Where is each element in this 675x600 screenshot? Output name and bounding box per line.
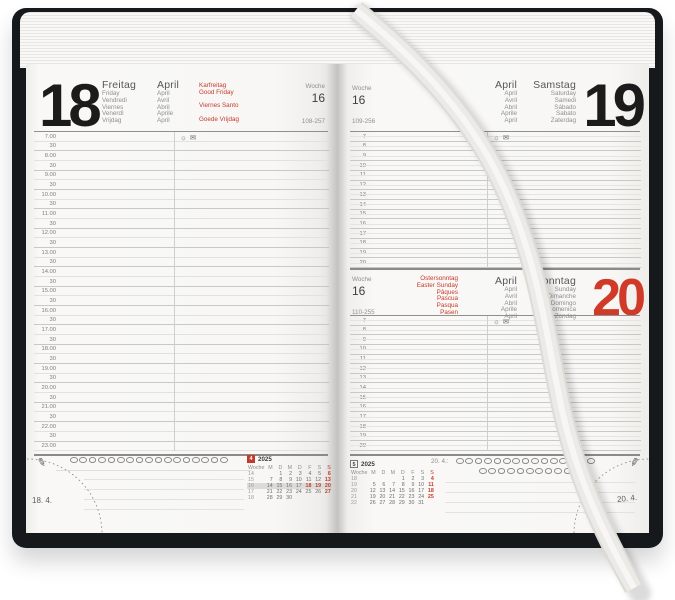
hour-row: 16 [350, 403, 641, 413]
sunday-hour-grid: 7891011121314151617181920 [350, 316, 641, 451]
saturday-day-name-column: SamstagSaturdaySamediSábadoSabatoZaterda… [533, 79, 576, 125]
oval-marker-icon [136, 457, 144, 463]
time-slot-row: 14.00 [34, 267, 329, 277]
friday-holiday-column: KarfreitagGood Friday Viernes Santo Goed… [199, 83, 239, 124]
oval-marker-icon [559, 458, 567, 464]
time-slot-row: 30 [34, 432, 329, 442]
hour-row: 18 [350, 239, 641, 249]
hour-row: 8 [350, 142, 641, 152]
hour-row: 8 [350, 326, 641, 336]
envelope-icon: ✉ [503, 133, 512, 142]
oval-marker-icon [192, 457, 200, 463]
time-slot-row: 30 [34, 238, 329, 248]
time-slot-row: 12.00 [34, 229, 329, 239]
oval-marker-icon [173, 457, 181, 463]
saturday-hour-grid: 7891011121314151617181920 [350, 132, 641, 268]
may-calendar-grid: WocheMDMDFSS1812341956789101120121314151… [350, 470, 438, 506]
hour-row: 16 [350, 219, 641, 229]
time-slot-row: 30 [34, 180, 329, 190]
oval-marker-icon [108, 457, 116, 463]
friday-symbol-markers [70, 457, 230, 463]
calendar-cell: 30 [406, 500, 416, 506]
oval-marker-icon [517, 468, 525, 474]
sunday-symbol-markers-row2 [479, 468, 582, 474]
right-page: Woche 16 109-256 AprilAprilAvrilAbrilApr… [337, 64, 649, 533]
oval-marker-icon [79, 457, 87, 463]
calendar-cell: 22 [350, 500, 367, 506]
friday-day-number: 18 [39, 76, 98, 136]
oval-marker-icon [465, 458, 473, 464]
time-slot-row: 9.00 [34, 171, 329, 181]
hour-row: 15 [350, 393, 641, 403]
oval-marker-icon [526, 468, 534, 474]
friday-time-grid: 7.00308.00309.003010.003011.003012.00301… [34, 132, 329, 451]
sunday-week-label: Woche [352, 276, 371, 283]
time-slot-row: 22.00 [34, 422, 329, 432]
hour-row: 10 [350, 345, 641, 355]
oval-marker-icon [503, 458, 511, 464]
time-slot-row: 30 [34, 335, 329, 345]
time-slot-row: 16.00 [34, 306, 329, 316]
hour-row: 9 [350, 151, 641, 161]
note-line [84, 499, 244, 500]
time-slot-row: 11.00 [34, 209, 329, 219]
sunday-footer-rule [350, 454, 640, 456]
saturday-day-number: 19 [583, 76, 642, 136]
hour-row: 14 [350, 383, 641, 393]
note-line [445, 512, 635, 513]
calendar-cell: 30 [283, 495, 293, 501]
oval-marker-icon [164, 457, 172, 463]
saturday-page-code: 109-256 [352, 118, 375, 125]
calendar-cell: 28 [386, 500, 396, 506]
oval-marker-icon [554, 468, 562, 474]
calendar-cell: 28 [264, 495, 274, 501]
april-calendar-title: 4 2025 [247, 455, 335, 463]
diary-photo: 18 FreitagFridayVendrediViernesVenerdìVr… [0, 0, 675, 600]
oval-marker-icon [569, 458, 577, 464]
hour-row: 10 [350, 161, 641, 171]
oval-marker-icon [155, 457, 163, 463]
friday-page-code: 108-257 [302, 118, 325, 125]
saturday-week-label: Woche [352, 85, 371, 92]
hour-row: 13 [350, 190, 641, 200]
oval-marker-icon [522, 458, 530, 464]
hour-row: 20 [350, 441, 641, 451]
time-slot-row: 30 [34, 219, 329, 229]
time-slot-row: 30 [34, 316, 329, 326]
oval-marker-icon [488, 468, 496, 474]
time-slot-row: 30 [34, 374, 329, 384]
hour-row: 19 [350, 249, 641, 259]
note-line [445, 482, 635, 483]
oval-marker-icon [145, 457, 153, 463]
calendar-cell: 26 [367, 500, 377, 506]
sun-icon: ☼ [180, 133, 190, 142]
time-slot-row: 13.00 [34, 248, 329, 258]
time-slot-row: 30 [34, 258, 329, 268]
oval-marker-icon [201, 457, 209, 463]
oval-marker-icon [507, 468, 515, 474]
sunday-day-icons: ☼✉ [493, 317, 512, 326]
calendar-cell [425, 500, 435, 506]
hour-row: 9 [350, 335, 641, 345]
oval-marker-icon [550, 458, 558, 464]
saturday-month-column: AprilAprilAvrilAbrilAprileApril [495, 79, 517, 125]
hour-row: 14 [350, 200, 641, 210]
note-line [445, 492, 635, 493]
calendar-cell [293, 495, 303, 501]
hour-row: 11 [350, 355, 641, 365]
friday-week-number: 16 [312, 91, 325, 105]
oval-marker-icon [183, 457, 191, 463]
calendar-cell: 31 [415, 500, 425, 506]
mini-calendar-may: 5 2025 WocheMDMDFSS181234195678910112012… [350, 460, 438, 506]
oval-marker-icon [220, 457, 228, 463]
mini-calendar-april: 4 2025 WocheMDMDFSS141234561578910111213… [247, 455, 335, 501]
oval-marker-icon [117, 457, 125, 463]
time-slot-row: 21.00 [34, 403, 329, 413]
saturday-day-icons: ☼✉ [493, 133, 512, 142]
friday-week-label: Woche [306, 83, 325, 90]
time-slot-row: 20.00 [34, 383, 329, 393]
pencil-icon: ✎ [628, 455, 640, 470]
gutter-shadow [326, 64, 348, 533]
time-slot-row: 30 [34, 142, 329, 152]
time-slot-row: 30 [34, 200, 329, 210]
oval-marker-icon [456, 458, 464, 464]
time-slot-row: 30 [34, 161, 329, 171]
april-month-badge: 4 [247, 455, 255, 463]
saturday-week-number: 16 [352, 93, 365, 107]
hour-row: 15 [350, 210, 641, 220]
hour-row: 20 [350, 258, 641, 268]
oval-marker-icon [564, 468, 572, 474]
oval-marker-icon [484, 458, 492, 464]
oval-marker-icon [498, 468, 506, 474]
envelope-icon: ✉ [503, 317, 512, 326]
friday-day-name-column: FreitagFridayVendrediViernesVenerdìVrijd… [102, 79, 136, 125]
oval-marker-icon [512, 458, 520, 464]
hour-row: 17 [350, 229, 641, 239]
note-line [84, 479, 244, 480]
time-slot-row: 19.00 [34, 364, 329, 374]
oval-marker-icon [494, 458, 502, 464]
sun-icon: ☼ [493, 133, 503, 142]
oval-marker-icon [479, 468, 487, 474]
pencil-icon: ✎ [35, 455, 47, 470]
time-slot-row: 30 [34, 393, 329, 403]
oval-marker-icon [98, 457, 106, 463]
note-line [84, 509, 244, 510]
sunday-note-lines [445, 482, 635, 522]
sunday-week-number: 16 [352, 284, 365, 298]
saturday-column-divider [487, 132, 488, 268]
friday-marker-underline [56, 470, 252, 471]
time-slot-row: 17.00 [34, 325, 329, 335]
hour-row: 19 [350, 432, 641, 442]
hour-row: 13 [350, 374, 641, 384]
note-line [445, 502, 635, 503]
page-stack-edge [20, 12, 655, 68]
friday-column-divider [174, 132, 175, 451]
oval-marker-icon [126, 457, 134, 463]
may-calendar-title: 5 2025 [350, 460, 438, 468]
friday-month-column: AprilAprilAvrilAbrilAprileApril [157, 79, 179, 125]
april-calendar-year: 2025 [258, 456, 272, 463]
time-slot-row: 10.00 [34, 190, 329, 200]
oval-marker-icon [211, 457, 219, 463]
oval-marker-icon [89, 457, 97, 463]
note-line [84, 489, 244, 490]
hour-row: 12 [350, 181, 641, 191]
april-calendar-grid: WocheMDMDFSS1412345615789101112131614151… [247, 465, 335, 501]
time-slot-row: 30 [34, 296, 329, 306]
hour-row: 11 [350, 171, 641, 181]
may-month-badge: 5 [350, 460, 358, 468]
may-calendar-year: 2025 [361, 461, 375, 468]
envelope-icon: ✉ [190, 133, 199, 142]
calendar-cell: 29 [274, 495, 284, 501]
calendar-cell: 29 [396, 500, 406, 506]
time-slot-row: 30 [34, 277, 329, 287]
time-slot-row: 30 [34, 354, 329, 364]
friday-corner-date: 18. 4. [32, 496, 52, 505]
oval-marker-icon [541, 458, 549, 464]
oval-marker-icon [545, 468, 553, 474]
time-slot-row: 30 [34, 412, 329, 422]
friday-note-lines [84, 479, 244, 519]
oval-marker-icon [578, 458, 586, 464]
oval-marker-icon [535, 468, 543, 474]
oval-marker-icon [475, 458, 483, 464]
sunday-holiday-column: OstersonntagEaster SundayPâquesPascuaPas… [417, 276, 458, 317]
time-slot-row: 18.00 [34, 345, 329, 355]
sunday-symbol-markers-row1 [456, 458, 597, 464]
calendar-cell: 18 [247, 495, 264, 501]
hour-row: 12 [350, 364, 641, 374]
oval-marker-icon [587, 458, 595, 464]
time-slot-row: 8.00 [34, 151, 329, 161]
hour-row: 17 [350, 412, 641, 422]
oval-marker-icon [573, 468, 581, 474]
hour-row: 18 [350, 422, 641, 432]
oval-marker-icon [70, 457, 78, 463]
oval-marker-icon [531, 458, 539, 464]
time-slot-row: 23.00 [34, 442, 329, 452]
calendar-cell [312, 495, 322, 501]
left-page-friday: 18 FreitagFridayVendrediViernesVenerdìVr… [26, 64, 337, 533]
time-slot-row: 15.00 [34, 287, 329, 297]
sun-icon: ☼ [493, 317, 503, 326]
calendar-cell: 27 [377, 500, 387, 506]
calendar-cell [303, 495, 313, 501]
friday-day-icons: ☼✉ [180, 133, 199, 142]
sunday-column-divider [487, 316, 488, 451]
